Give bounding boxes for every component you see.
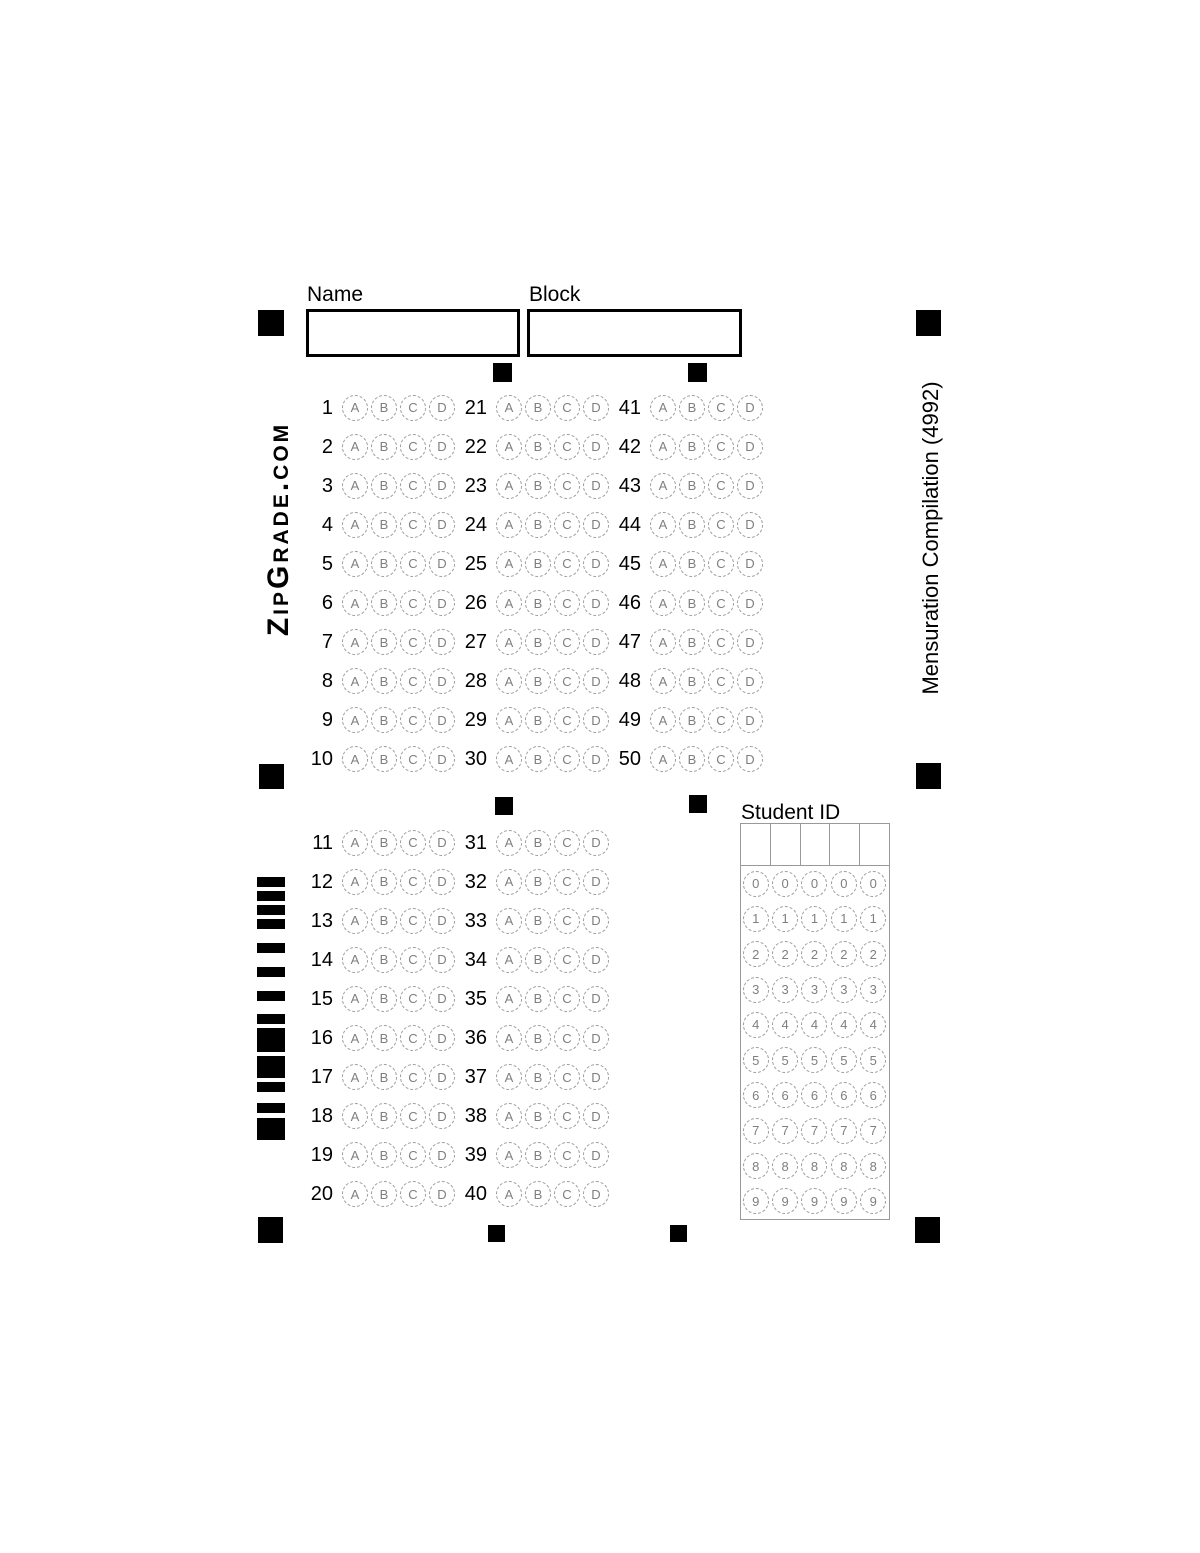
id-bubble-col4-digit-6[interactable]: 6 xyxy=(831,1082,857,1108)
id-bubble-col2-digit-2[interactable]: 2 xyxy=(772,941,798,967)
answer-bubble-q10-b[interactable]: B xyxy=(371,746,397,772)
answer-bubble-q3-a[interactable]: A xyxy=(342,473,368,499)
answer-bubble-q20-a[interactable]: A xyxy=(342,1181,368,1207)
answer-bubble-q49-d[interactable]: D xyxy=(737,707,763,733)
answer-bubble-q2-d[interactable]: D xyxy=(429,434,455,460)
answer-bubble-q22-b[interactable]: B xyxy=(525,434,551,460)
answer-bubble-q18-a[interactable]: A xyxy=(342,1103,368,1129)
answer-bubble-q15-d[interactable]: D xyxy=(429,986,455,1012)
answer-bubble-q42-c[interactable]: C xyxy=(708,434,734,460)
id-bubble-col5-digit-1[interactable]: 1 xyxy=(860,906,886,932)
answer-bubble-q9-d[interactable]: D xyxy=(429,707,455,733)
answer-bubble-q5-b[interactable]: B xyxy=(371,551,397,577)
answer-bubble-q3-d[interactable]: D xyxy=(429,473,455,499)
answer-bubble-q36-d[interactable]: D xyxy=(583,1025,609,1051)
answer-bubble-q45-d[interactable]: D xyxy=(737,551,763,577)
answer-bubble-q16-b[interactable]: B xyxy=(371,1025,397,1051)
registration-mark-bottom-left xyxy=(258,1217,283,1243)
answer-bubble-q46-b[interactable]: B xyxy=(679,590,705,616)
answer-bubble-q33-c[interactable]: C xyxy=(554,908,580,934)
answer-bubble-q13-a[interactable]: A xyxy=(342,908,368,934)
question-29-group: 29ABCD xyxy=(455,707,609,733)
answer-bubble-q34-a[interactable]: A xyxy=(496,947,522,973)
question-number-30: 30 xyxy=(455,749,487,769)
id-bubble-col1-digit-9[interactable]: 9 xyxy=(743,1188,769,1214)
answer-bubble-q19-b[interactable]: B xyxy=(371,1142,397,1168)
answer-bubble-q28-c[interactable]: C xyxy=(554,668,580,694)
answer-bubble-q33-a[interactable]: A xyxy=(496,908,522,934)
answer-bubble-q40-b[interactable]: B xyxy=(525,1181,551,1207)
answer-bubble-q2-b[interactable]: B xyxy=(371,434,397,460)
answer-bubble-q14-d[interactable]: D xyxy=(429,947,455,973)
answer-bubble-q2-a[interactable]: A xyxy=(342,434,368,460)
student-id-digit-row-3: 33333 xyxy=(741,972,889,1007)
id-bubble-col3-digit-8[interactable]: 8 xyxy=(801,1153,827,1179)
answer-bubble-q39-a[interactable]: A xyxy=(496,1142,522,1168)
answer-bubble-q11-b[interactable]: B xyxy=(371,830,397,856)
student-id-col3-slot: 8 xyxy=(800,1153,829,1179)
answer-bubble-q28-a[interactable]: A xyxy=(496,668,522,694)
answer-bubble-q5-d[interactable]: D xyxy=(429,551,455,577)
answer-bubble-q27-d[interactable]: D xyxy=(583,629,609,655)
answer-bubble-q38-d[interactable]: D xyxy=(583,1103,609,1129)
id-bubble-col2-digit-4[interactable]: 4 xyxy=(772,1012,798,1038)
answer-bubble-q30-c[interactable]: C xyxy=(554,746,580,772)
answer-bubble-q47-b[interactable]: B xyxy=(679,629,705,655)
id-bubble-col2-digit-9[interactable]: 9 xyxy=(772,1188,798,1214)
answer-bubble-q31-a[interactable]: A xyxy=(496,830,522,856)
id-bubble-col1-digit-6[interactable]: 6 xyxy=(743,1082,769,1108)
answer-bubble-q12-b[interactable]: B xyxy=(371,869,397,895)
answer-bubble-q23-c[interactable]: C xyxy=(554,473,580,499)
student-id-writein-cell-1[interactable] xyxy=(741,824,771,865)
id-bubble-col3-digit-9[interactable]: 9 xyxy=(801,1188,827,1214)
answer-bubble-q15-c[interactable]: C xyxy=(400,986,426,1012)
answer-bubble-q12-c[interactable]: C xyxy=(400,869,426,895)
answer-bubble-q44-b[interactable]: B xyxy=(679,512,705,538)
answer-bubble-q18-c[interactable]: C xyxy=(400,1103,426,1129)
barcode-bar-3 xyxy=(257,905,285,915)
answer-row: 7ABCD27ABCD47ABCD xyxy=(301,623,763,662)
answer-bubble-q4-b[interactable]: B xyxy=(371,512,397,538)
id-bubble-col2-digit-6[interactable]: 6 xyxy=(772,1082,798,1108)
answer-bubble-q42-a[interactable]: A xyxy=(650,434,676,460)
answer-bubble-q44-a[interactable]: A xyxy=(650,512,676,538)
answer-bubble-q14-a[interactable]: A xyxy=(342,947,368,973)
id-bubble-col2-digit-0[interactable]: 0 xyxy=(772,871,798,897)
id-bubble-col1-digit-0[interactable]: 0 xyxy=(743,871,769,897)
answer-bubble-q46-d[interactable]: D xyxy=(737,590,763,616)
student-id-writein-cell-3[interactable] xyxy=(801,824,831,865)
question-number-40: 40 xyxy=(455,1184,487,1204)
answer-bubble-q37-a[interactable]: A xyxy=(496,1064,522,1090)
id-bubble-col5-digit-4[interactable]: 4 xyxy=(860,1012,886,1038)
answer-bubble-q13-c[interactable]: C xyxy=(400,908,426,934)
answer-bubble-q35-d[interactable]: D xyxy=(583,986,609,1012)
student-id-col5-slot: 5 xyxy=(859,1047,888,1073)
answer-bubble-q41-c[interactable]: C xyxy=(708,395,734,421)
answer-bubble-q34-b[interactable]: B xyxy=(525,947,551,973)
id-bubble-col2-digit-5[interactable]: 5 xyxy=(772,1047,798,1073)
answer-bubble-q21-a[interactable]: A xyxy=(496,395,522,421)
answer-bubble-q37-c[interactable]: C xyxy=(554,1064,580,1090)
id-bubble-col3-digit-5[interactable]: 5 xyxy=(801,1047,827,1073)
answer-bubble-q26-c[interactable]: C xyxy=(554,590,580,616)
answer-bubble-q22-c[interactable]: C xyxy=(554,434,580,460)
answer-bubble-q24-c[interactable]: C xyxy=(554,512,580,538)
student-id-writein-row xyxy=(741,824,889,866)
answer-bubble-q23-a[interactable]: A xyxy=(496,473,522,499)
answer-bubble-q8-b[interactable]: B xyxy=(371,668,397,694)
question-36-group: 36ABCD xyxy=(455,1025,609,1051)
answer-bubble-q23-d[interactable]: D xyxy=(583,473,609,499)
answer-row: 19ABCD39ABCD xyxy=(301,1136,609,1175)
answer-bubble-q9-c[interactable]: C xyxy=(400,707,426,733)
id-bubble-col1-digit-7[interactable]: 7 xyxy=(743,1118,769,1144)
answer-bubble-q30-a[interactable]: A xyxy=(496,746,522,772)
answer-bubble-q21-b[interactable]: B xyxy=(525,395,551,421)
answer-bubble-q33-b[interactable]: B xyxy=(525,908,551,934)
answer-bubble-q45-c[interactable]: C xyxy=(708,551,734,577)
student-id-col1-slot: 9 xyxy=(741,1188,770,1214)
answer-bubble-q19-d[interactable]: D xyxy=(429,1142,455,1168)
student-id-digit-row-9: 99999 xyxy=(741,1184,889,1219)
answer-bubble-q40-a[interactable]: A xyxy=(496,1181,522,1207)
question-number-9: 9 xyxy=(301,710,333,730)
id-bubble-col1-digit-8[interactable]: 8 xyxy=(743,1153,769,1179)
answer-bubble-q43-b[interactable]: B xyxy=(679,473,705,499)
id-bubble-col4-digit-3[interactable]: 3 xyxy=(831,977,857,1003)
answer-bubble-q1-d[interactable]: D xyxy=(429,395,455,421)
answer-bubble-q42-d[interactable]: D xyxy=(737,434,763,460)
student-id-writein-cell-2[interactable] xyxy=(771,824,801,865)
answer-bubble-q42-b[interactable]: B xyxy=(679,434,705,460)
id-bubble-col5-digit-6[interactable]: 6 xyxy=(860,1082,886,1108)
answer-bubble-q25-a[interactable]: A xyxy=(496,551,522,577)
answer-bubble-q4-d[interactable]: D xyxy=(429,512,455,538)
question-number-16: 16 xyxy=(301,1028,333,1048)
answer-bubble-q25-d[interactable]: D xyxy=(583,551,609,577)
id-bubble-col2-digit-1[interactable]: 1 xyxy=(772,906,798,932)
question-27-group: 27ABCD xyxy=(455,629,609,655)
answer-bubble-q6-c[interactable]: C xyxy=(400,590,426,616)
answer-bubble-q1-c[interactable]: C xyxy=(400,395,426,421)
answer-bubble-q25-c[interactable]: C xyxy=(554,551,580,577)
answer-bubble-q26-b[interactable]: B xyxy=(525,590,551,616)
answer-bubble-q29-a[interactable]: A xyxy=(496,707,522,733)
answer-bubble-q17-b[interactable]: B xyxy=(371,1064,397,1090)
student-id-col3-slot: 4 xyxy=(800,1012,829,1038)
question-48-group: 48ABCD xyxy=(609,668,763,694)
answer-bubble-q12-a[interactable]: A xyxy=(342,869,368,895)
answer-bubble-q45-b[interactable]: B xyxy=(679,551,705,577)
answer-bubble-q8-d[interactable]: D xyxy=(429,668,455,694)
answer-bubble-q1-a[interactable]: A xyxy=(342,395,368,421)
answer-bubble-q17-c[interactable]: C xyxy=(400,1064,426,1090)
id-bubble-col1-digit-4[interactable]: 4 xyxy=(743,1012,769,1038)
answer-bubble-q6-b[interactable]: B xyxy=(371,590,397,616)
answer-bubble-q6-a[interactable]: A xyxy=(342,590,368,616)
answer-bubble-q17-a[interactable]: A xyxy=(342,1064,368,1090)
answer-bubble-q32-d[interactable]: D xyxy=(583,869,609,895)
answer-bubble-q15-b[interactable]: B xyxy=(371,986,397,1012)
answer-bubble-q7-c[interactable]: C xyxy=(400,629,426,655)
id-bubble-col4-digit-1[interactable]: 1 xyxy=(831,906,857,932)
answer-bubble-q47-c[interactable]: C xyxy=(708,629,734,655)
id-bubble-col4-digit-8[interactable]: 8 xyxy=(831,1153,857,1179)
answer-bubble-q11-a[interactable]: A xyxy=(342,830,368,856)
answer-bubble-q36-a[interactable]: A xyxy=(496,1025,522,1051)
answer-bubble-q27-b[interactable]: B xyxy=(525,629,551,655)
answer-row: 12ABCD32ABCD xyxy=(301,862,609,901)
answer-bubble-q11-d[interactable]: D xyxy=(429,830,455,856)
id-bubble-col4-digit-0[interactable]: 0 xyxy=(831,871,857,897)
answer-bubble-q27-a[interactable]: A xyxy=(496,629,522,655)
answer-bubble-q14-c[interactable]: C xyxy=(400,947,426,973)
answer-bubble-q11-c[interactable]: C xyxy=(400,830,426,856)
answer-bubble-q44-c[interactable]: C xyxy=(708,512,734,538)
answer-bubble-q34-c[interactable]: C xyxy=(554,947,580,973)
answer-bubble-q47-d[interactable]: D xyxy=(737,629,763,655)
answer-bubble-q19-a[interactable]: A xyxy=(342,1142,368,1168)
answer-bubble-q34-d[interactable]: D xyxy=(583,947,609,973)
answer-bubble-q30-d[interactable]: D xyxy=(583,746,609,772)
answer-bubble-q16-c[interactable]: C xyxy=(400,1025,426,1051)
barcode-bar-8 xyxy=(257,1014,285,1024)
student-id-col5-slot: 6 xyxy=(859,1082,888,1108)
id-bubble-col3-digit-0[interactable]: 0 xyxy=(801,871,827,897)
answer-bubble-q3-c[interactable]: C xyxy=(400,473,426,499)
answer-bubble-q44-d[interactable]: D xyxy=(737,512,763,538)
answer-bubble-q5-c[interactable]: C xyxy=(400,551,426,577)
answer-bubble-q50-c[interactable]: C xyxy=(708,746,734,772)
student-id-bubble-rows: 0000011111222223333344444555556666677777… xyxy=(741,866,889,1219)
id-bubble-col2-digit-3[interactable]: 3 xyxy=(772,977,798,1003)
question-19-group: 19ABCD xyxy=(301,1142,455,1168)
answer-bubble-q25-b[interactable]: B xyxy=(525,551,551,577)
answer-bubble-q2-c[interactable]: C xyxy=(400,434,426,460)
answer-bubble-q19-c[interactable]: C xyxy=(400,1142,426,1168)
answer-bubble-q10-d[interactable]: D xyxy=(429,746,455,772)
id-bubble-col4-digit-7[interactable]: 7 xyxy=(831,1118,857,1144)
answer-bubble-q50-b[interactable]: B xyxy=(679,746,705,772)
answer-bubble-q47-a[interactable]: A xyxy=(650,629,676,655)
id-bubble-col4-digit-5[interactable]: 5 xyxy=(831,1047,857,1073)
question-28-group: 28ABCD xyxy=(455,668,609,694)
answer-bubble-q6-d[interactable]: D xyxy=(429,590,455,616)
answer-bubble-q30-b[interactable]: B xyxy=(525,746,551,772)
answer-bubble-q24-d[interactable]: D xyxy=(583,512,609,538)
answer-bubble-q7-d[interactable]: D xyxy=(429,629,455,655)
answer-bubble-q10-a[interactable]: A xyxy=(342,746,368,772)
id-bubble-col5-digit-5[interactable]: 5 xyxy=(860,1047,886,1073)
id-bubble-col4-digit-2[interactable]: 2 xyxy=(831,941,857,967)
answer-bubble-q24-b[interactable]: B xyxy=(525,512,551,538)
id-bubble-col4-digit-4[interactable]: 4 xyxy=(831,1012,857,1038)
answer-bubble-q33-d[interactable]: D xyxy=(583,908,609,934)
answer-bubble-q29-d[interactable]: D xyxy=(583,707,609,733)
question-8-group: 8ABCD xyxy=(301,668,455,694)
answer-row: 20ABCD40ABCD xyxy=(301,1175,609,1214)
answer-bubble-q38-c[interactable]: C xyxy=(554,1103,580,1129)
answer-bubble-q29-b[interactable]: B xyxy=(525,707,551,733)
id-bubble-col3-digit-3[interactable]: 3 xyxy=(801,977,827,1003)
answer-bubble-q21-d[interactable]: D xyxy=(583,395,609,421)
student-id-writein-cell-4[interactable] xyxy=(830,824,860,865)
student-id-col1-slot: 8 xyxy=(741,1153,770,1179)
id-bubble-col1-digit-1[interactable]: 1 xyxy=(743,906,769,932)
answer-bubble-q49-b[interactable]: B xyxy=(679,707,705,733)
answer-bubble-q18-d[interactable]: D xyxy=(429,1103,455,1129)
id-bubble-col4-digit-9[interactable]: 9 xyxy=(831,1188,857,1214)
answer-bubble-q32-b[interactable]: B xyxy=(525,869,551,895)
answer-bubble-q9-a[interactable]: A xyxy=(342,707,368,733)
answer-bubble-q18-b[interactable]: B xyxy=(371,1103,397,1129)
answer-bubble-q46-c[interactable]: C xyxy=(708,590,734,616)
answer-bubble-q16-a[interactable]: A xyxy=(342,1025,368,1051)
answer-bubble-q14-b[interactable]: B xyxy=(371,947,397,973)
id-bubble-col3-digit-7[interactable]: 7 xyxy=(801,1118,827,1144)
answer-bubble-q8-c[interactable]: C xyxy=(400,668,426,694)
answer-bubble-q46-a[interactable]: A xyxy=(650,590,676,616)
answer-bubble-q23-b[interactable]: B xyxy=(525,473,551,499)
answer-bubble-q36-c[interactable]: C xyxy=(554,1025,580,1051)
answer-bubble-q28-d[interactable]: D xyxy=(583,668,609,694)
answer-bubble-q20-c[interactable]: C xyxy=(400,1181,426,1207)
answer-bubble-q48-c[interactable]: C xyxy=(708,668,734,694)
answer-bubble-q41-d[interactable]: D xyxy=(737,395,763,421)
answer-bubble-q48-a[interactable]: A xyxy=(650,668,676,694)
id-bubble-col2-digit-8[interactable]: 8 xyxy=(772,1153,798,1179)
answer-bubble-q31-b[interactable]: B xyxy=(525,830,551,856)
answer-bubble-q36-b[interactable]: B xyxy=(525,1025,551,1051)
id-bubble-col2-digit-7[interactable]: 7 xyxy=(772,1118,798,1144)
answer-bubble-q43-c[interactable]: C xyxy=(708,473,734,499)
answer-bubble-q38-a[interactable]: A xyxy=(496,1103,522,1129)
answer-bubble-q20-b[interactable]: B xyxy=(371,1181,397,1207)
block-input-box[interactable] xyxy=(527,309,742,357)
answer-bubble-q22-a[interactable]: A xyxy=(496,434,522,460)
answer-bubble-q32-a[interactable]: A xyxy=(496,869,522,895)
answer-bubble-q39-c[interactable]: C xyxy=(554,1142,580,1168)
answer-row: 18ABCD38ABCD xyxy=(301,1097,609,1136)
answer-bubble-q27-c[interactable]: C xyxy=(554,629,580,655)
id-bubble-col5-digit-0[interactable]: 0 xyxy=(860,871,886,897)
question-38-group: 38ABCD xyxy=(455,1103,609,1129)
answer-bubble-q4-c[interactable]: C xyxy=(400,512,426,538)
answer-bubble-q10-c[interactable]: C xyxy=(400,746,426,772)
student-id-col5-slot: 0 xyxy=(859,871,888,897)
answer-bubble-q13-b[interactable]: B xyxy=(371,908,397,934)
answer-bubble-q26-d[interactable]: D xyxy=(583,590,609,616)
name-input-box[interactable] xyxy=(306,309,520,357)
id-bubble-col5-digit-9[interactable]: 9 xyxy=(860,1188,886,1214)
question-number-3: 3 xyxy=(301,476,333,496)
answer-bubble-q40-c[interactable]: C xyxy=(554,1181,580,1207)
answer-bubble-q31-c[interactable]: C xyxy=(554,830,580,856)
student-id-writein-cell-5[interactable] xyxy=(860,824,889,865)
zipgrade-logo: ZipGrade.com xyxy=(262,422,296,636)
id-bubble-col3-digit-4[interactable]: 4 xyxy=(801,1012,827,1038)
answer-bubble-q20-d[interactable]: D xyxy=(429,1181,455,1207)
id-bubble-col5-digit-8[interactable]: 8 xyxy=(860,1153,886,1179)
answer-bubble-q39-b[interactable]: B xyxy=(525,1142,551,1168)
registration-mark-top-right xyxy=(916,310,941,336)
student-id-col3-slot: 0 xyxy=(800,871,829,897)
question-7-group: 7ABCD xyxy=(301,629,455,655)
answer-bubble-q37-d[interactable]: D xyxy=(583,1064,609,1090)
answer-bubble-q31-d[interactable]: D xyxy=(583,830,609,856)
registration-mark-bottom-right xyxy=(915,1217,940,1243)
answer-bubble-q32-c[interactable]: C xyxy=(554,869,580,895)
answer-bubble-q48-b[interactable]: B xyxy=(679,668,705,694)
answer-bubble-q9-b[interactable]: B xyxy=(371,707,397,733)
answer-bubble-q1-b[interactable]: B xyxy=(371,395,397,421)
answer-bubble-q38-b[interactable]: B xyxy=(525,1103,551,1129)
answer-bubble-q8-a[interactable]: A xyxy=(342,668,368,694)
answer-bubble-q13-d[interactable]: D xyxy=(429,908,455,934)
answer-bubble-q26-a[interactable]: A xyxy=(496,590,522,616)
answer-bubble-q50-d[interactable]: D xyxy=(737,746,763,772)
id-bubble-col1-digit-2[interactable]: 2 xyxy=(743,941,769,967)
answer-bubble-q21-c[interactable]: C xyxy=(554,395,580,421)
answer-bubble-q7-a[interactable]: A xyxy=(342,629,368,655)
answer-bubble-q24-a[interactable]: A xyxy=(496,512,522,538)
answer-bubble-q16-d[interactable]: D xyxy=(429,1025,455,1051)
answer-bubble-q12-d[interactable]: D xyxy=(429,869,455,895)
answer-bubble-q40-d[interactable]: D xyxy=(583,1181,609,1207)
answer-bubble-q49-c[interactable]: C xyxy=(708,707,734,733)
answer-bubble-q17-d[interactable]: D xyxy=(429,1064,455,1090)
answer-bubble-q45-a[interactable]: A xyxy=(650,551,676,577)
answer-bubble-q5-a[interactable]: A xyxy=(342,551,368,577)
answer-bubble-q3-b[interactable]: B xyxy=(371,473,397,499)
answer-bubble-q4-a[interactable]: A xyxy=(342,512,368,538)
answer-bubble-q28-b[interactable]: B xyxy=(525,668,551,694)
answer-bubble-q35-b[interactable]: B xyxy=(525,986,551,1012)
question-15-group: 15ABCD xyxy=(301,986,455,1012)
id-bubble-col5-digit-2[interactable]: 2 xyxy=(860,941,886,967)
id-bubble-col1-digit-5[interactable]: 5 xyxy=(743,1047,769,1073)
id-bubble-col3-digit-2[interactable]: 2 xyxy=(801,941,827,967)
id-bubble-col1-digit-3[interactable]: 3 xyxy=(743,977,769,1003)
answer-bubble-q29-c[interactable]: C xyxy=(554,707,580,733)
answer-bubble-q35-a[interactable]: A xyxy=(496,986,522,1012)
answer-bubble-q39-d[interactable]: D xyxy=(583,1142,609,1168)
answer-bubble-q15-a[interactable]: A xyxy=(342,986,368,1012)
answer-bubble-q7-b[interactable]: B xyxy=(371,629,397,655)
answer-bubble-q41-a[interactable]: A xyxy=(650,395,676,421)
answer-bubble-q43-a[interactable]: A xyxy=(650,473,676,499)
answer-bubble-q41-b[interactable]: B xyxy=(679,395,705,421)
id-bubble-col5-digit-7[interactable]: 7 xyxy=(860,1118,886,1144)
id-bubble-col5-digit-3[interactable]: 3 xyxy=(860,977,886,1003)
id-bubble-col3-digit-6[interactable]: 6 xyxy=(801,1082,827,1108)
question-50-group: 50ABCD xyxy=(609,746,763,772)
answer-bubble-q37-b[interactable]: B xyxy=(525,1064,551,1090)
answer-bubble-q48-d[interactable]: D xyxy=(737,668,763,694)
answer-bubble-q22-d[interactable]: D xyxy=(583,434,609,460)
answer-bubble-q43-d[interactable]: D xyxy=(737,473,763,499)
answer-bubble-q49-a[interactable]: A xyxy=(650,707,676,733)
answer-bubble-q35-c[interactable]: C xyxy=(554,986,580,1012)
question-42-group: 42ABCD xyxy=(609,434,763,460)
student-id-col2-slot: 2 xyxy=(770,941,799,967)
student-id-grid: 0000011111222223333344444555556666677777… xyxy=(740,823,890,1220)
question-number-20: 20 xyxy=(301,1184,333,1204)
id-bubble-col3-digit-1[interactable]: 1 xyxy=(801,906,827,932)
answer-bubble-q50-a[interactable]: A xyxy=(650,746,676,772)
